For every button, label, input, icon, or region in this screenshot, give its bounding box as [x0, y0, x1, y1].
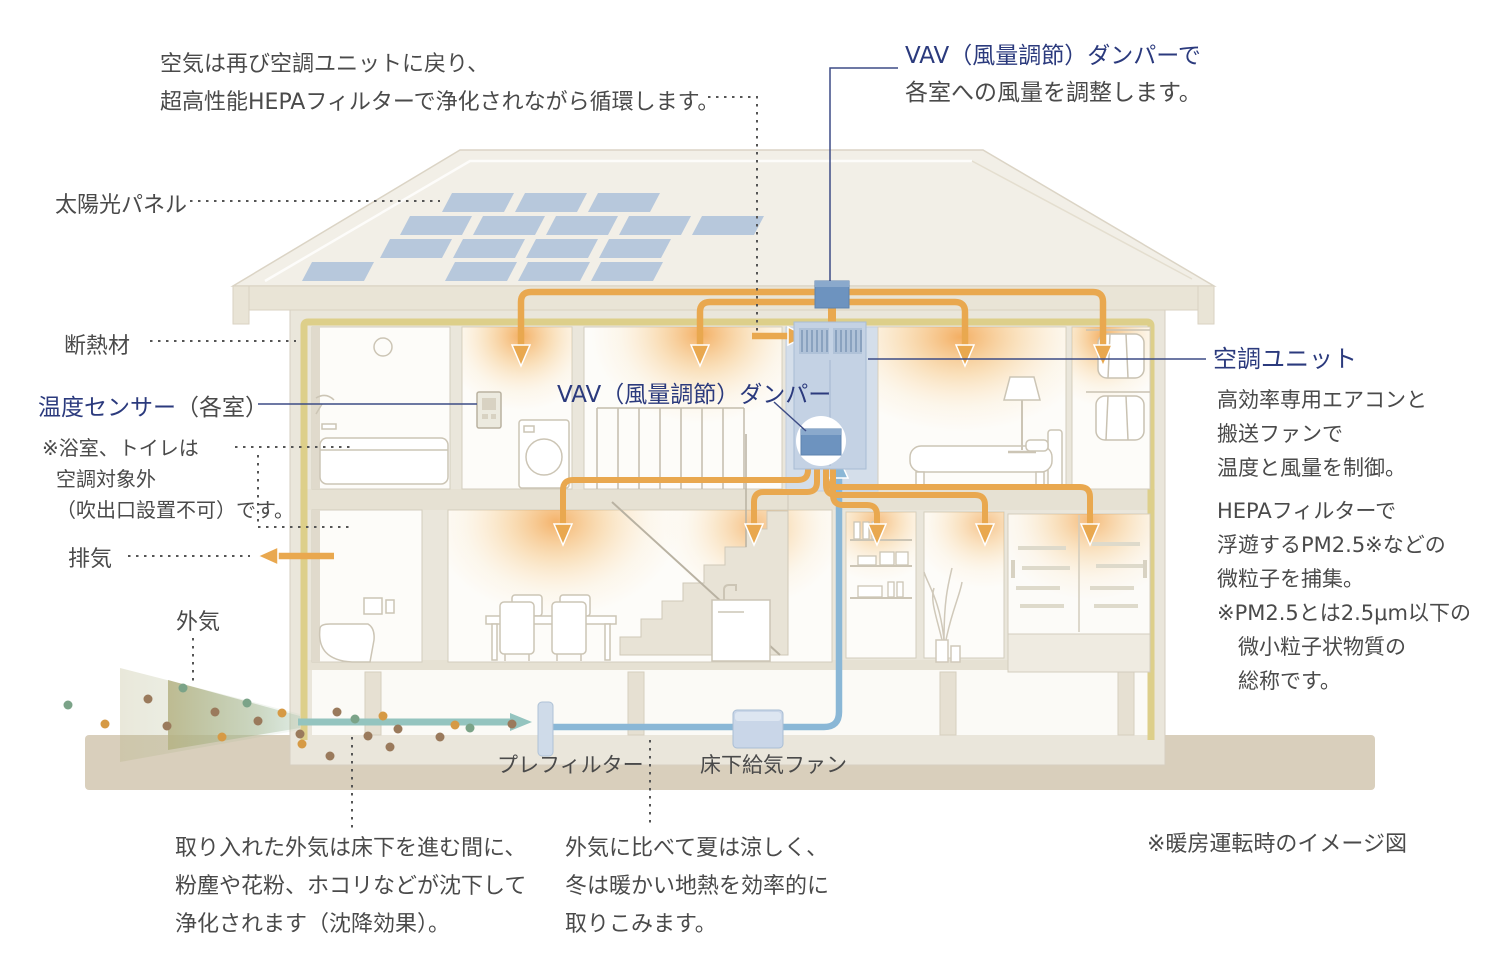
ac-unit-desc2-line1: HEPAフィルターで [1217, 494, 1446, 528]
washing-machine-icon [519, 420, 569, 488]
bath-note-line2: 空調対象外 [42, 464, 294, 495]
outside-air-label: 外気 [176, 604, 220, 642]
vav-mid-label: VAV（風量調節）ダンパー [557, 376, 831, 414]
exhaust-label: 排気 [68, 541, 112, 579]
bath-note: ※浴室、トイレは 空調対象外 （吹出口設置不可）です。 [42, 433, 294, 526]
pm25-note-line1: ※PM2.5とは2.5μm以下の [1217, 596, 1471, 630]
temp-sensor-label-main: 温度センサー [38, 395, 176, 421]
roof [233, 150, 1214, 324]
insulation-label: 断熱材 [64, 328, 130, 366]
geothermal-note-line3: 取りこみます。 [565, 906, 829, 944]
ac-unit-desc1-line1: 高効率専用エアコンと [1217, 383, 1427, 417]
bath-note-line3: （吹出口設置不可）です。 [42, 495, 294, 526]
geothermal-note-line2: 冬は暖かい地熱を効率的に [565, 868, 829, 906]
geothermal-note: 外気に比べて夏は涼しく、 冬は暖かい地熱を効率的に 取りこみます。 [565, 830, 829, 944]
solar-panel-label: 太陽光パネル [55, 187, 187, 225]
recirculation-note-line2: 超高性能HEPAフィルターで浄化されながら循環します。 [160, 84, 719, 122]
ac-unit-title: 空調ユニット [1213, 340, 1357, 378]
vav-damper-mid [796, 416, 846, 466]
ac-unit-desc2-line2: 浮遊するPM2.5※などの [1217, 528, 1446, 562]
vav-top-note-line2: 各室への風量を調整します。 [905, 75, 1202, 112]
vav-top-note: VAV（風量調節）ダンパーで 各室への風量を調整します。 [905, 38, 1202, 112]
recirculation-note-line1: 空気は再び空調ユニットに戻り、 [160, 46, 719, 84]
recirculation-note: 空気は再び空調ユニットに戻り、 超高性能HEPAフィルターで浄化されながら循環し… [160, 46, 719, 122]
ac-unit-desc2: HEPAフィルターで 浮遊するPM2.5※などの 微粒子を捕集。 [1217, 494, 1446, 596]
ac-unit-desc2-line3: 微粒子を捕集。 [1217, 562, 1446, 596]
pm25-note-line3: 総称です。 [1217, 664, 1471, 698]
underfloor-fan-label: 床下給気ファン [700, 748, 847, 782]
ac-unit-desc1: 高効率専用エアコンと 搬送ファンで 温度と風量を制御。 [1217, 383, 1427, 485]
vav-top-note-line1: VAV（風量調節）ダンパーで [905, 38, 1202, 75]
bath-note-line1: ※浴室、トイレは [42, 433, 294, 464]
underfloor-note-line1: 取り入れた外気は床下を進む間に、 [175, 830, 526, 868]
heating-mode-note: ※暖房運転時のイメージ図 [1147, 826, 1407, 864]
temp-sensor-label: 温度センサー（各室） [38, 389, 268, 427]
pm25-note-line2: 微小粒子状物質の [1217, 630, 1471, 664]
ac-unit-desc1-line3: 温度と風量を制御。 [1217, 451, 1427, 485]
upper-floor-slab [300, 489, 1155, 510]
geothermal-note-line1: 外気に比べて夏は涼しく、 [565, 830, 829, 868]
thermostat-icon [477, 392, 501, 428]
underfloor-fan [733, 710, 783, 748]
prefilter-label: プレフィルター [497, 748, 644, 782]
pm25-note: ※PM2.5とは2.5μm以下の 微小粒子状物質の 総称です。 [1217, 596, 1471, 698]
hvac-house-diagram: 空気は再び空調ユニットに戻り、 超高性能HEPAフィルターで浄化されながら循環し… [0, 0, 1500, 953]
underfloor-note-line2: 粉塵や花粉、ホコリなどが沈下して [175, 868, 526, 906]
vav-damper-top [815, 281, 849, 308]
underfloor-note-line3: 浄化されます（沈降効果）。 [175, 906, 526, 944]
temp-sensor-label-suffix: （各室） [176, 395, 268, 421]
underfloor-note: 取り入れた外気は床下を進む間に、 粉塵や花粉、ホコリなどが沈下して 浄化されます… [175, 830, 526, 944]
ac-unit-desc1-line2: 搬送ファンで [1217, 417, 1427, 451]
